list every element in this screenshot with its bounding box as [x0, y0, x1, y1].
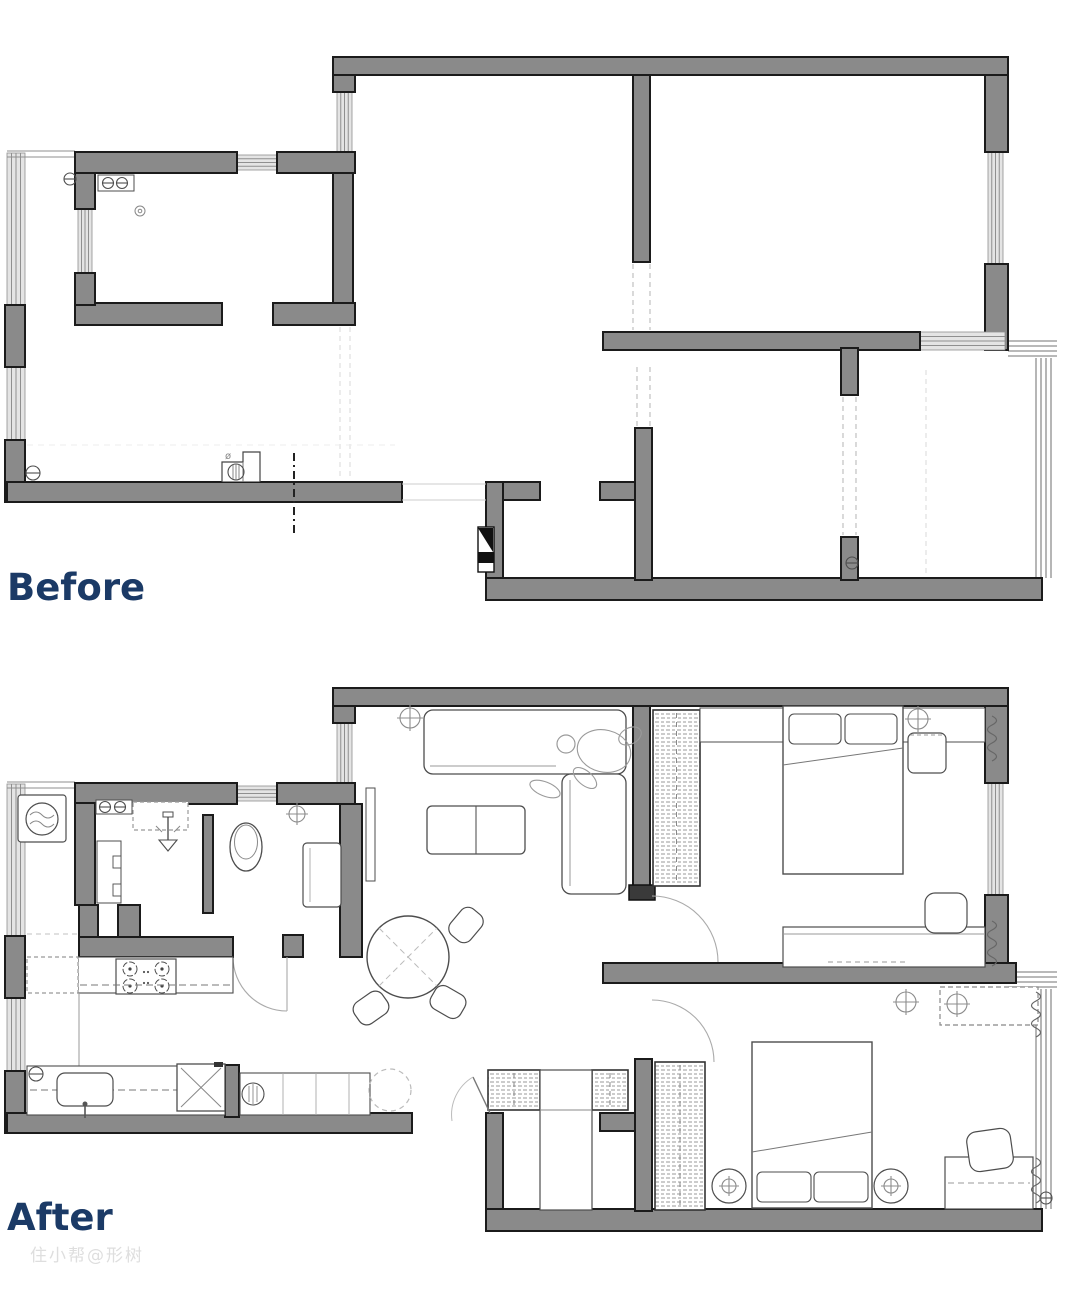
entry-door-mark	[478, 527, 494, 572]
coffee-table	[427, 806, 525, 854]
bath-door-arc	[233, 957, 287, 1011]
dining-chair	[445, 904, 487, 947]
dining-chair	[427, 982, 469, 1022]
watermark: 住小帮@形树	[30, 1246, 144, 1266]
ceiling-light	[893, 989, 919, 1015]
ceiling-light	[397, 705, 423, 731]
bedroom-2	[652, 987, 1052, 1210]
bedroom-1	[652, 706, 997, 967]
bedside-table	[908, 733, 946, 773]
east-bench	[240, 1073, 370, 1115]
bedside-table	[712, 1169, 746, 1203]
toilet	[230, 823, 262, 871]
floorplan-canvas: ø Before After 住小帮@形树	[0, 0, 1080, 1293]
bedside-table	[874, 1169, 908, 1203]
before-interior-windows	[78, 209, 1005, 350]
before-plan: ø	[5, 57, 1057, 600]
after-plan	[5, 688, 1057, 1231]
double-bed	[752, 1042, 872, 1208]
before-interior-walls	[7, 173, 920, 580]
svg-text:ø: ø	[225, 451, 231, 462]
wardrobe	[653, 710, 700, 886]
kitchen-sink	[98, 175, 134, 191]
corner-valve	[26, 466, 40, 480]
shoe-cabinet	[488, 1070, 540, 1110]
entry	[452, 1070, 628, 1210]
wardrobe	[655, 1062, 705, 1210]
floorplan-image: ø Before After 住小帮@形树	[0, 0, 1080, 1293]
door-arc	[652, 1000, 714, 1062]
sofa	[424, 710, 626, 894]
desk-chair	[965, 1127, 1014, 1173]
desk-chair	[925, 893, 967, 933]
gas-stove	[116, 959, 176, 994]
dining-table	[367, 916, 449, 998]
faucet	[286, 803, 308, 825]
fridge	[177, 1062, 225, 1111]
ceiling-rose	[135, 206, 145, 216]
wall-shelf	[940, 987, 1038, 1025]
entry-door	[452, 1077, 490, 1121]
shoe-cabinet	[592, 1070, 628, 1110]
wall-valve	[64, 173, 76, 185]
exterior-walls	[5, 57, 1042, 600]
tv-bench	[366, 788, 375, 881]
dining-chair	[350, 988, 393, 1029]
before-label: Before	[7, 566, 145, 609]
tall-cabinet	[540, 1070, 592, 1210]
door-arc	[652, 896, 718, 962]
vanity	[303, 843, 341, 907]
pendant-ghost	[369, 1069, 411, 1111]
living-room	[350, 705, 645, 1028]
double-bed	[783, 706, 903, 874]
kitchen	[27, 957, 411, 1118]
toilet: ø	[222, 451, 260, 482]
after-label: After	[7, 1196, 114, 1239]
